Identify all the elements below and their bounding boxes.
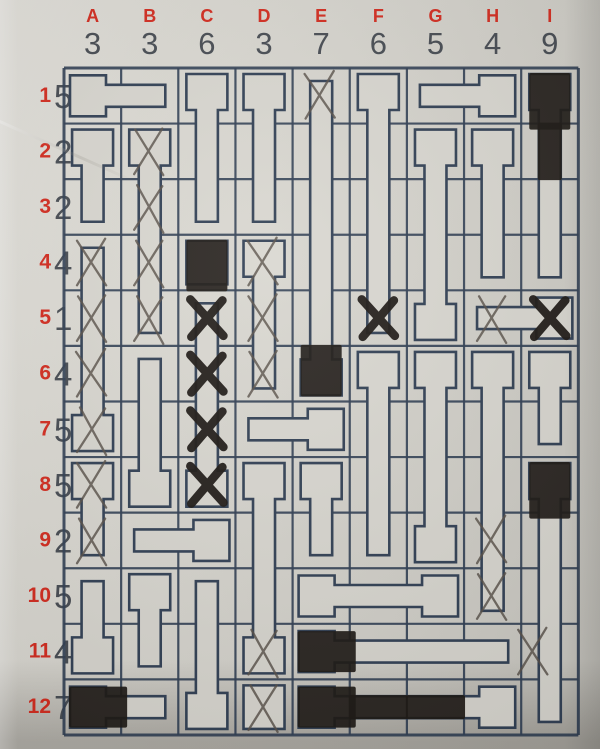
nail-piece-E8-E9 [301,463,342,555]
row-label: 10 [28,584,51,607]
marker-fill-E6 [301,345,342,397]
row-label: 5 [39,306,51,329]
row-label: 7 [39,417,51,440]
column-label: H [486,6,499,26]
row-label: 4 [39,251,51,274]
column-label: G [428,6,442,26]
nail-piece-A1-B1 [70,75,165,116]
row-label: 12 [28,695,51,718]
nail-piece-B2-B5 [129,130,170,333]
puzzle-board: A3B3C6D3E7F6G5H4I91522324451647585921051… [0,0,600,749]
column-clue: 6 [370,26,387,61]
nail-piece-I6-I7 [529,352,570,444]
nail-piece-F1-F5 [358,74,399,333]
nail-piece-C10-C12 [186,581,227,729]
column-label: B [143,6,156,26]
marker-fill-E11 [298,631,356,672]
nail-piece-D1-D3 [244,74,285,222]
column-clue: 5 [427,26,444,61]
marker-fill-I2 [538,123,562,181]
marker-fill-G12 [406,695,465,719]
nail-piece-A2-A3 [72,130,113,222]
row-label: 2 [39,139,51,162]
column-label: E [315,6,327,26]
row-label: 1 [39,84,51,107]
column-clue: 9 [541,26,558,61]
nail-piece-A4-A7 [72,248,113,451]
nail-piece-B6-B8 [129,359,170,507]
marker-fill-F12 [349,695,408,719]
column-clue: 4 [484,26,501,61]
column-label: A [86,6,99,26]
column-clue: 3 [255,26,272,61]
row-label: 8 [39,473,51,496]
nail-piece-G1-H1 [420,75,515,116]
column-headers: A3B3C6D3E7F6G5H4I9 [84,6,558,61]
column-clue: 3 [141,26,158,61]
column-clue: 7 [313,26,330,61]
nail-piece-C1-C3 [186,74,227,222]
column-clue: 3 [84,26,101,61]
nail-piece-E10-G10 [299,576,458,617]
nail-piece-H6-H10 [472,352,513,611]
marker-fill-I1 [529,73,570,130]
nail-piece-D7-E7 [248,409,343,450]
nail-piece-B9-C9 [134,520,229,561]
puzzle-sheet-photo: A3B3C6D3E7F6G5H4I91522324451647585921051… [0,0,600,749]
column-label: D [258,6,271,26]
marker-fill-E12 [298,687,356,728]
nail-piece-A10-A11 [72,581,113,673]
nail-piece-B10-B11 [129,574,170,666]
marker-fill-A12 [69,687,127,728]
column-clue: 6 [198,26,215,61]
row-label: 9 [39,528,51,551]
nail-piece-H2-H4 [472,130,513,278]
row-label: 6 [39,362,51,385]
column-label: C [200,6,213,26]
row-label: 11 [29,640,52,663]
nail-piece-F6-F9 [358,352,399,555]
marker-fill-I8 [529,462,570,519]
column-label: F [373,6,384,26]
marker-fill-C4 [186,240,227,292]
column-label: I [547,6,552,26]
row-label: 3 [39,195,51,218]
